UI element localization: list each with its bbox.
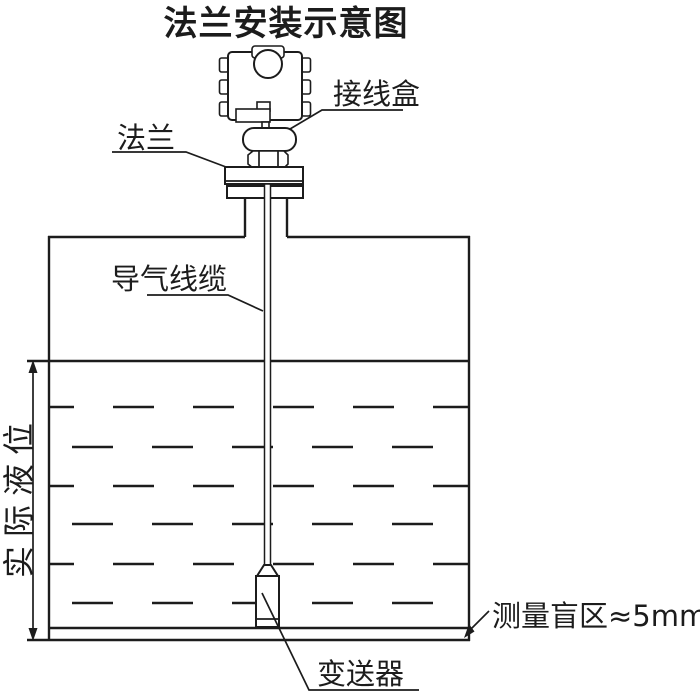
conduit-block-bar bbox=[236, 109, 270, 122]
probe-taper bbox=[257, 565, 278, 576]
junction-box-label: 接线盒 bbox=[333, 77, 420, 111]
blind-zone-arrow-line bbox=[470, 611, 489, 630]
flange-installation-diagram: 法兰安装示意图 接线盒 法兰 导气线缆 实际液位 测量盲区≈5mm 变送器 bbox=[0, 0, 700, 700]
swivel-coupling bbox=[243, 128, 296, 151]
diagram-title: 法兰安装示意图 bbox=[164, 4, 409, 44]
diagram-canvas: 法兰安装示意图 接线盒 法兰 导气线缆 实际液位 测量盲区≈5mm 变送器 bbox=[0, 0, 700, 700]
blind-zone-label: 测量盲区≈5mm bbox=[492, 599, 700, 633]
guide-cable bbox=[265, 184, 271, 567]
blind-zone-pointer bbox=[464, 611, 489, 638]
air-cable-label: 导气线缆 bbox=[111, 262, 227, 296]
transmitter-label: 变送器 bbox=[317, 657, 404, 691]
sight-glass-circle bbox=[254, 50, 282, 78]
air-cable-leader bbox=[147, 295, 263, 311]
tank bbox=[27, 236, 470, 641]
actual-level-label: 实际液位 bbox=[0, 414, 38, 578]
probe bbox=[256, 565, 279, 627]
transmitter-head bbox=[220, 46, 311, 168]
hex-nut bbox=[248, 151, 288, 168]
flange-label: 法兰 bbox=[117, 121, 175, 155]
